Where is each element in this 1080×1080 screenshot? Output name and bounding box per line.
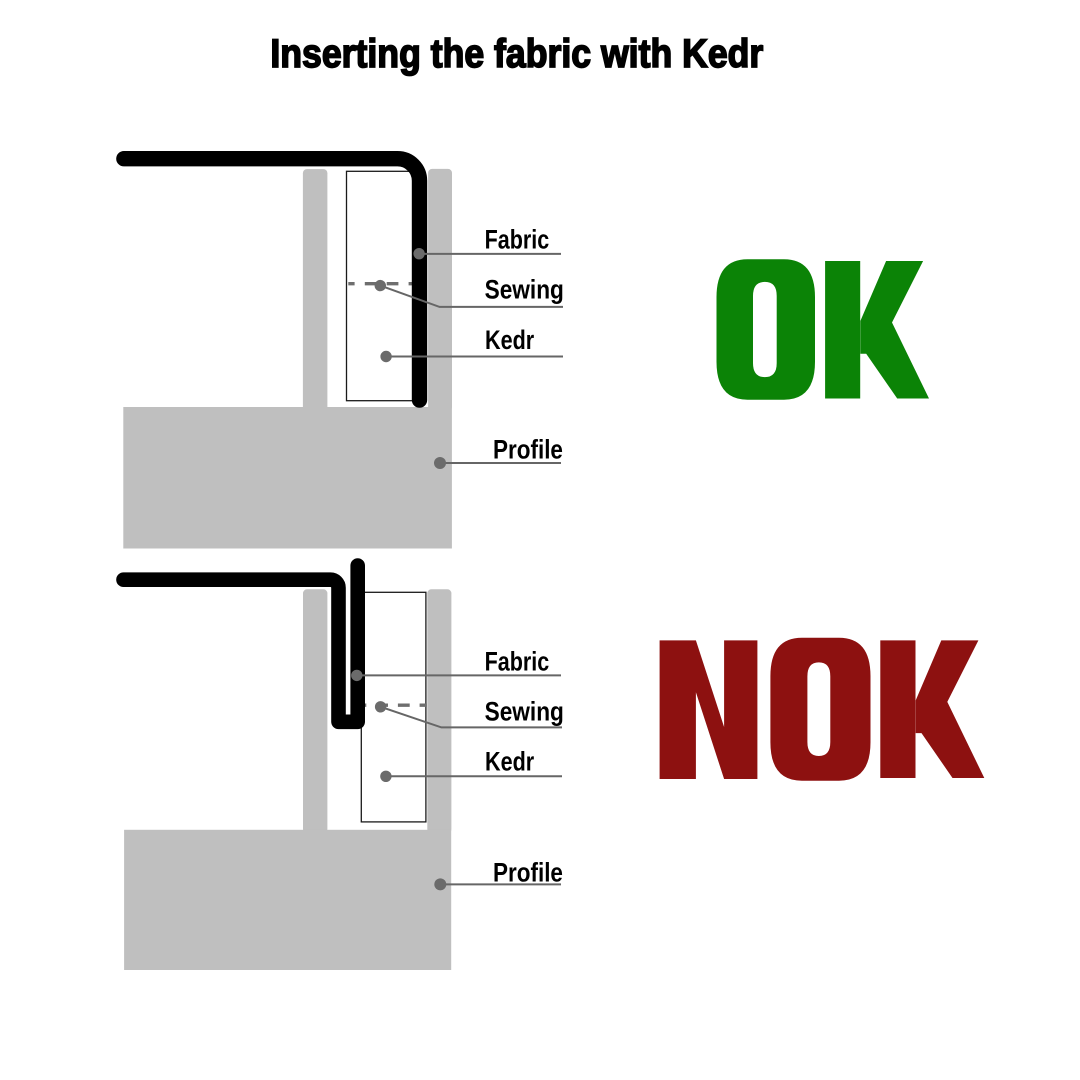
svg-text:Inserting the fabric with Kedr: Inserting the fabric with Kedr [270,31,763,75]
svg-text:Fabric: Fabric [485,647,550,677]
svg-text:Sewing: Sewing [485,696,564,726]
svg-text:Fabric: Fabric [485,225,550,255]
svg-text:Sewing: Sewing [485,275,564,305]
svg-text:Profile: Profile [493,435,563,464]
svg-text:Kedr: Kedr [485,747,535,777]
svg-text:Profile: Profile [493,859,563,888]
svg-text:Kedr: Kedr [485,326,535,356]
